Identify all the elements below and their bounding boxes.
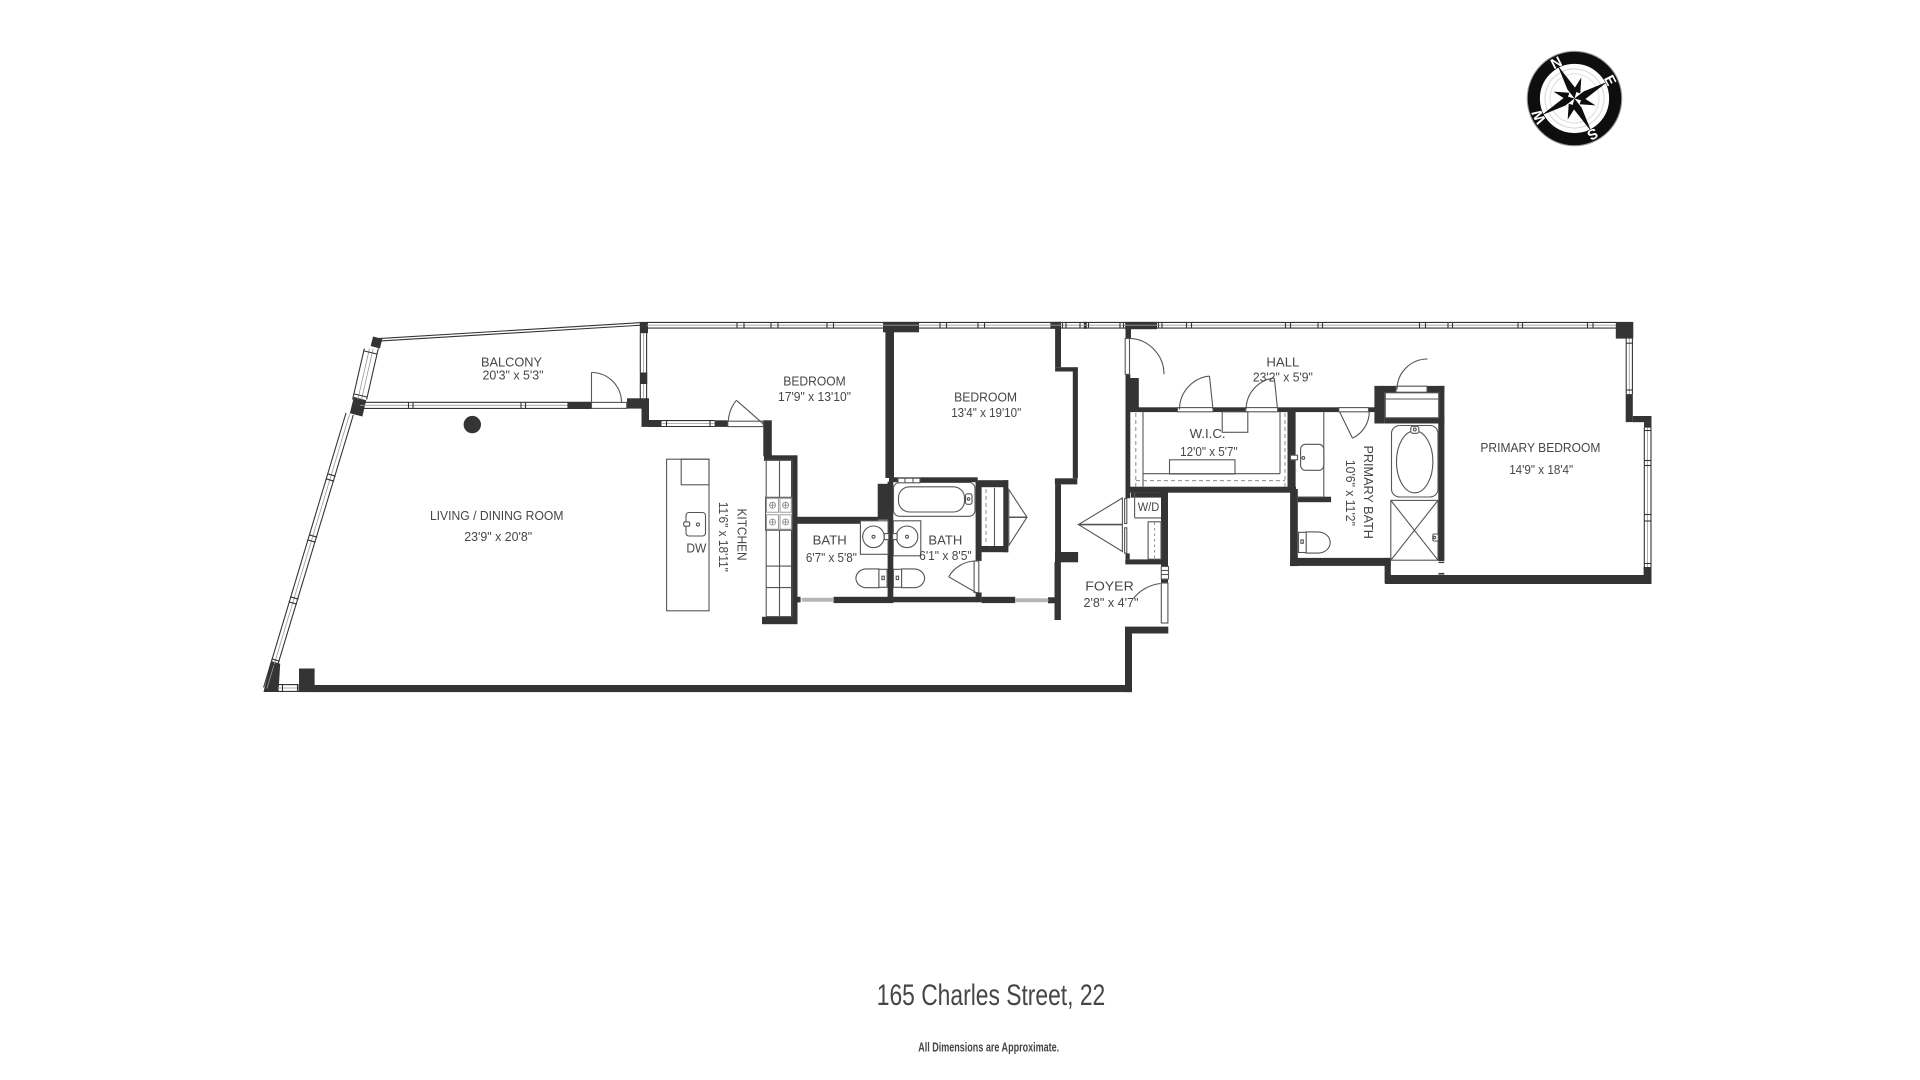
svg-text:BATH: BATH [813, 534, 847, 548]
svg-text:HALL: HALL [1266, 356, 1299, 370]
svg-text:20'3" x 5'3": 20'3" x 5'3" [483, 369, 544, 383]
svg-text:PRIMARY BATH: PRIMARY BATH [1361, 445, 1375, 539]
svg-text:165 Charles Street, 22: 165 Charles Street, 22 [877, 979, 1106, 1012]
svg-text:11'6" x 18'11": 11'6" x 18'11" [716, 502, 730, 572]
svg-text:12'0" x 5'7": 12'0" x 5'7" [1180, 445, 1238, 459]
svg-text:KITCHEN: KITCHEN [734, 509, 748, 561]
svg-text:W.I.C.: W.I.C. [1190, 427, 1226, 441]
svg-text:14'9" x 18'4": 14'9" x 18'4" [1509, 463, 1573, 477]
svg-text:2'8" x 4'7": 2'8" x 4'7" [1084, 596, 1139, 610]
svg-text:6'1" x 8'5": 6'1" x 8'5" [919, 549, 972, 563]
svg-text:LIVING / DINING ROOM: LIVING / DINING ROOM [430, 509, 564, 523]
svg-text:DW: DW [686, 541, 706, 555]
svg-text:BATH: BATH [928, 533, 962, 547]
svg-text:FOYER: FOYER [1085, 580, 1134, 594]
svg-text:BALCONY: BALCONY [481, 355, 543, 369]
svg-text:PRIMARY BEDROOM: PRIMARY BEDROOM [1480, 441, 1600, 455]
svg-text:6'7" x 5'8": 6'7" x 5'8" [806, 551, 857, 565]
svg-text:23'2" x 5'9": 23'2" x 5'9" [1253, 371, 1313, 385]
svg-text:BEDROOM: BEDROOM [783, 374, 846, 388]
svg-text:13'4" x 19'10": 13'4" x 19'10" [951, 406, 1021, 420]
svg-text:23'9" x 20'8": 23'9" x 20'8" [464, 530, 532, 544]
svg-text:W/D: W/D [1138, 502, 1160, 514]
svg-text:BEDROOM: BEDROOM [954, 390, 1017, 404]
svg-text:17'9" x 13'10": 17'9" x 13'10" [778, 390, 851, 404]
svg-text:10'6" x 11'2": 10'6" x 11'2" [1343, 460, 1357, 526]
svg-text:All Dimensions are Approximate: All Dimensions are Approximate. [918, 1041, 1059, 1055]
